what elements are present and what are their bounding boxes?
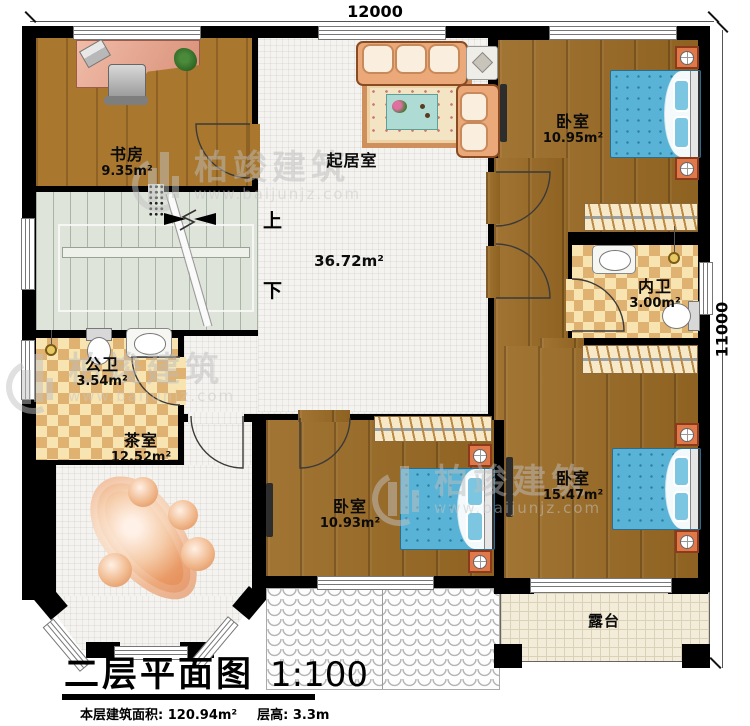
stairs-down-label: 下	[263, 276, 282, 303]
public-bath-label: 公卫 3.54m²	[42, 356, 162, 389]
bedroom2-label: 卧室 15.47m²	[513, 470, 633, 503]
bedroom1-label: 卧室 10.95m²	[513, 113, 633, 146]
stairs-up-label: 上	[263, 206, 282, 233]
bedroom3-label: 卧室 10.93m²	[290, 498, 410, 531]
door-arc-corridor	[496, 244, 550, 298]
plan-title: 二层平面图	[64, 646, 254, 697]
living-room-label: 起居室	[292, 152, 412, 170]
plan-footer: 本层建筑面积: 120.94m² 层高: 3.3m	[80, 704, 329, 723]
door-arc-bedroom3	[300, 418, 350, 468]
door-arc-study	[196, 124, 250, 178]
door-arc-bedroom1	[496, 172, 550, 226]
tea-room-label: 茶室 12.52m²	[81, 432, 201, 465]
floor-plan-canvas: 12000 11000	[0, 0, 750, 726]
stair-arrow-right	[194, 213, 216, 225]
title-underline	[62, 694, 315, 700]
terrace-label: 露台	[544, 612, 664, 630]
study-label: 书房 9.35m²	[67, 146, 187, 179]
floor-area-info: 本层建筑面积: 120.94m²	[80, 704, 237, 723]
title-block: 二层平面图 1:100	[64, 646, 368, 697]
ensuite-label: 内卫 3.00m²	[600, 278, 710, 311]
plan-scale: 1:100	[270, 655, 368, 695]
floor-height-info: 层高: 3.3m	[257, 704, 329, 723]
living-room-area-label: 36.72m²	[289, 254, 409, 269]
stair-break-line	[166, 194, 212, 326]
